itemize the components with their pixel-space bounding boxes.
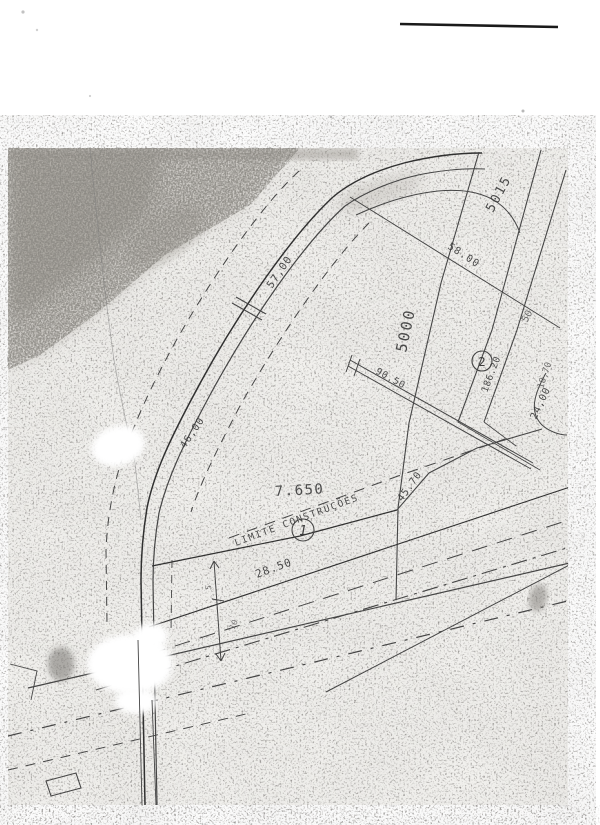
- dust-speck: [330, 116, 332, 118]
- scanned-survey-page: 1 2 7.650 LIMITE CONSTRUÇÕES 5000 5015 5…: [0, 0, 600, 825]
- dust-speck: [89, 95, 91, 97]
- dust-speck: [21, 10, 24, 13]
- whiteout-blob-lower2: [134, 623, 168, 649]
- lot-1-number: 1: [299, 524, 307, 539]
- tick-label-5: 5: [204, 584, 213, 590]
- area-value-label: 7.650: [274, 481, 324, 500]
- ink-smudge-bottom-left: [48, 647, 74, 681]
- whiteout-blob-lower3: [115, 688, 157, 714]
- bottom-margin-noise: [0, 806, 600, 823]
- dust-speck: [522, 110, 525, 113]
- dust-speck: [36, 29, 38, 31]
- lot-2-number: 2: [478, 355, 485, 369]
- survey-plan-scan: 1 2 7.650 LIMITE CONSTRUÇÕES 5000 5015 5…: [0, 0, 600, 825]
